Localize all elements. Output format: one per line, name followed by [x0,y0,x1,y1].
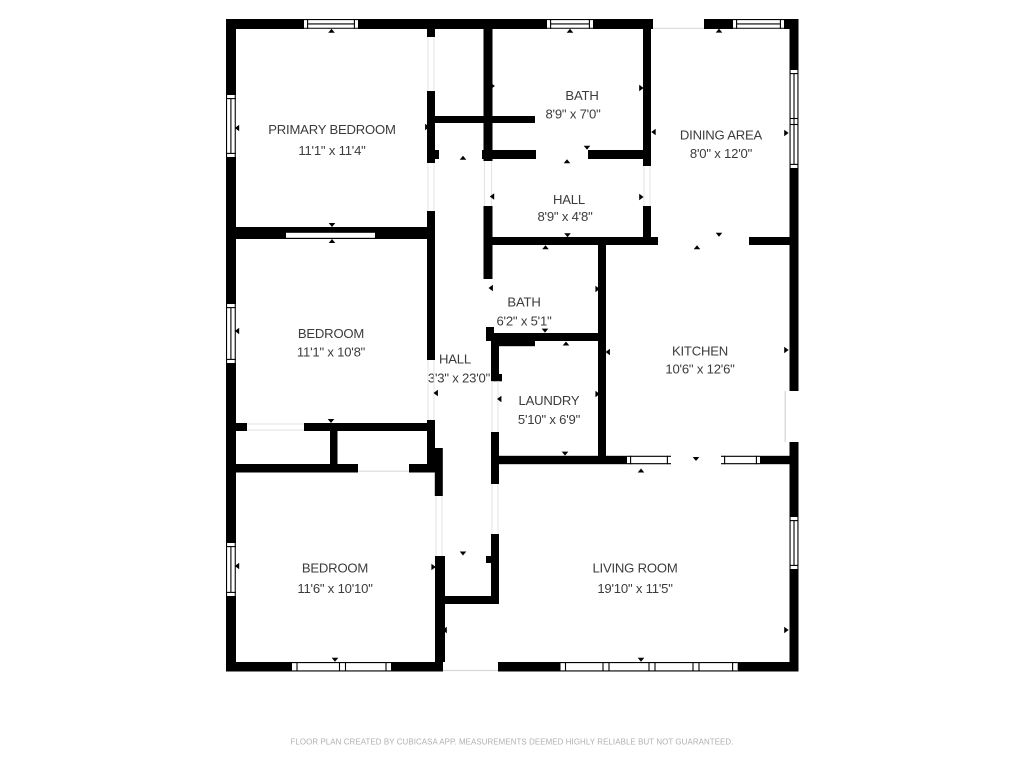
svg-text:3'3" x 23'0": 3'3" x 23'0" [428,371,491,386]
svg-text:FLOOR PLAN CREATED BY CUBICASA: FLOOR PLAN CREATED BY CUBICASA APP. MEAS… [290,738,733,747]
svg-text:10'6" x 12'6": 10'6" x 12'6" [665,362,735,377]
svg-text:BATH: BATH [507,295,540,310]
svg-text:KITCHEN: KITCHEN [672,344,728,359]
svg-text:6'2" x 5'1": 6'2" x 5'1" [496,314,552,329]
svg-text:5'10" x 6'9": 5'10" x 6'9" [518,412,581,427]
svg-text:8'9" x 7'0": 8'9" x 7'0" [545,107,601,122]
svg-text:19'10" x 11'5": 19'10" x 11'5" [597,581,673,596]
svg-text:BEDROOM: BEDROOM [298,326,364,341]
svg-text:8'0" x 12'0": 8'0" x 12'0" [690,146,753,161]
svg-text:11'6" x 10'10": 11'6" x 10'10" [297,581,373,596]
svg-text:DINING AREA: DINING AREA [680,128,763,143]
svg-text:BEDROOM: BEDROOM [302,561,368,576]
svg-text:11'1" x 11'4": 11'1" x 11'4" [298,143,366,158]
svg-text:LIVING ROOM: LIVING ROOM [592,561,677,576]
svg-text:11'1" x 10'8": 11'1" x 10'8" [297,345,366,360]
svg-text:BATH: BATH [565,88,598,103]
svg-text:8'9" x 4'8": 8'9" x 4'8" [537,209,593,224]
svg-text:HALL: HALL [439,352,471,367]
svg-text:PRIMARY BEDROOM: PRIMARY BEDROOM [268,122,395,137]
svg-text:LAUNDRY: LAUNDRY [519,393,580,408]
svg-text:HALL: HALL [553,192,585,207]
